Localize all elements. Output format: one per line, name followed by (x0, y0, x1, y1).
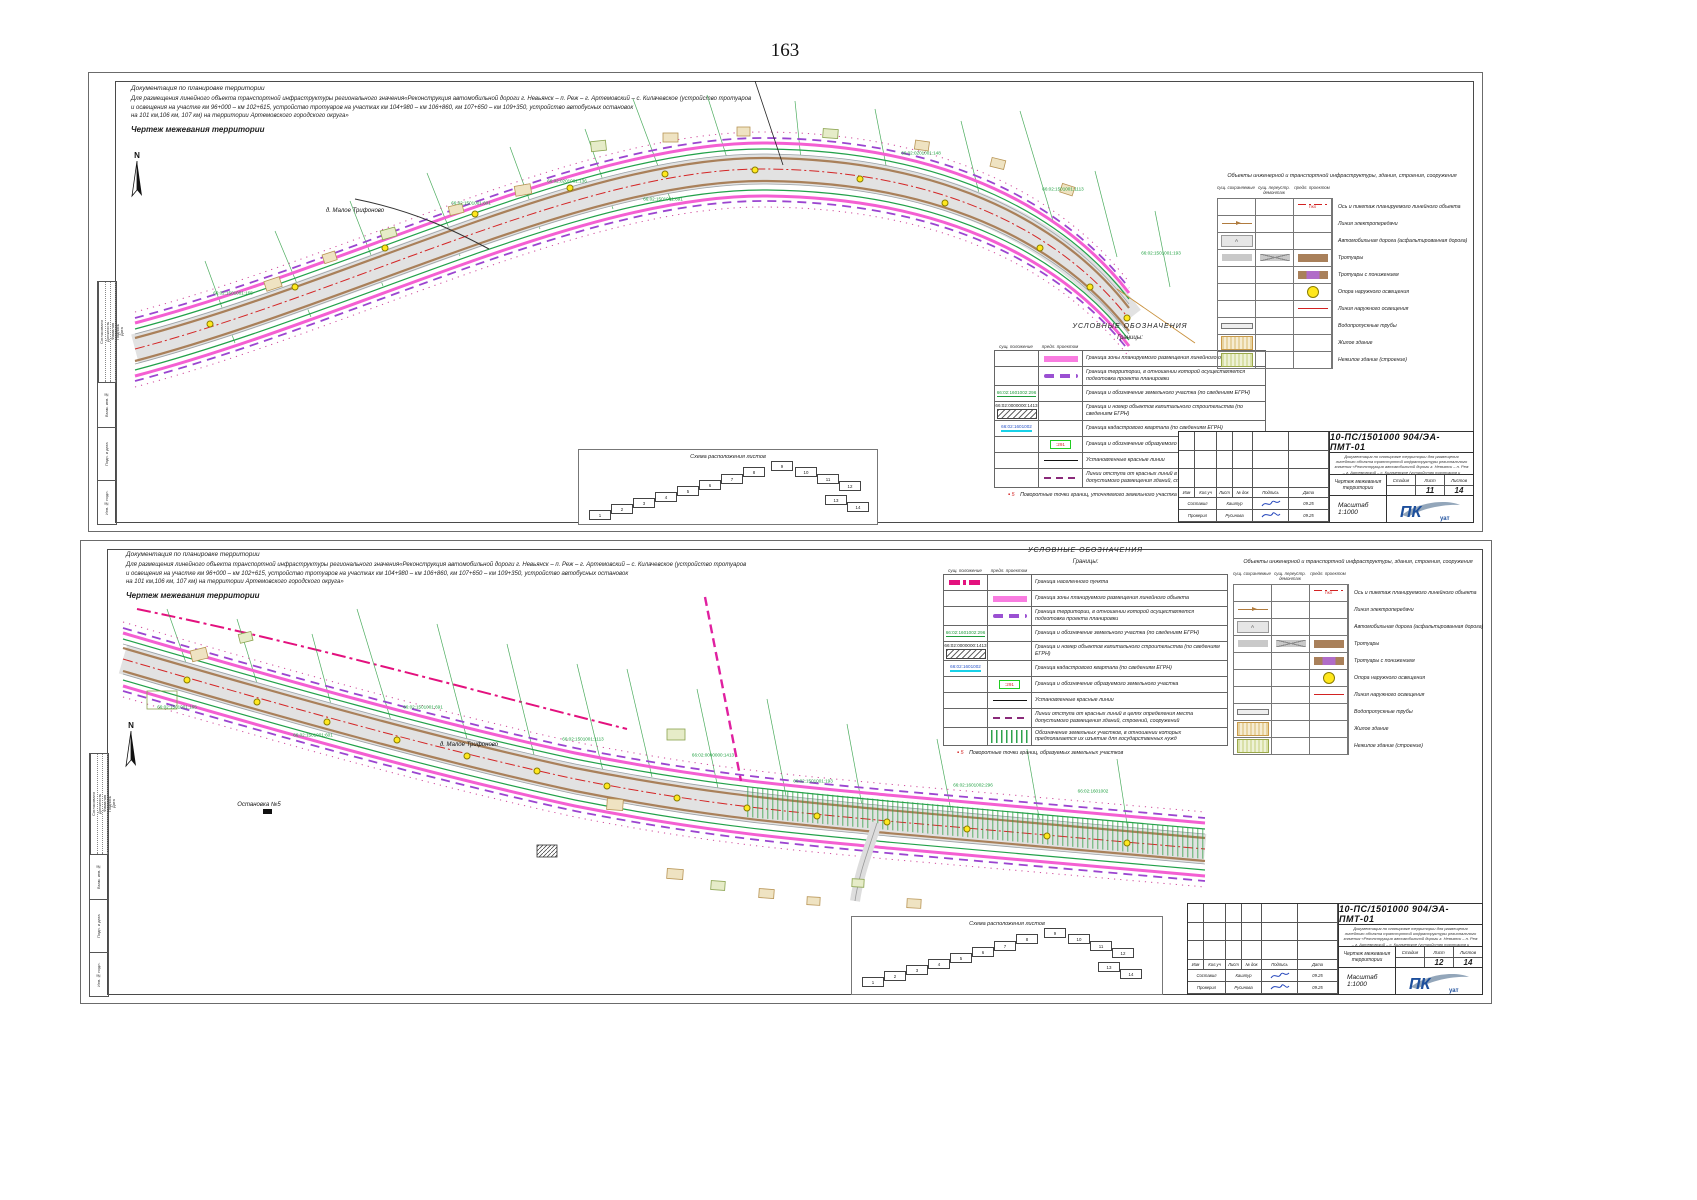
sign-date: 09.25 (1289, 510, 1329, 522)
svg-text:ПК: ПК (1400, 504, 1423, 521)
scheme-sheet-box: 3 (906, 965, 928, 975)
legend-column-headers: сущ. положение предл. проектом (943, 568, 1228, 573)
objects-row: Тротуары (1234, 636, 1348, 653)
lamp-marker (744, 805, 751, 812)
map-label: 66:02:0201001:136 (547, 179, 587, 184)
side-inv-label: Инв.№ подл. (90, 953, 108, 996)
author-name: Каштур (1226, 970, 1262, 982)
legend-label: Линии отступа от красных линий в целях о… (1032, 709, 1227, 727)
lamp-marker (464, 753, 471, 760)
objects-label: Опора наружного освещения (1354, 675, 1425, 681)
objects-label: Автомобильная дорога (асфальтированная д… (1338, 238, 1467, 244)
objects-label: Линия электропередачи (1354, 607, 1414, 613)
lamp-marker (752, 167, 759, 174)
author-name: Каштур (1217, 498, 1253, 510)
stage-sheet-values: 11 14 (1387, 486, 1473, 495)
sign-date: 09.25 (1298, 970, 1338, 982)
legend-label: Граница территории, в отношении которой … (1032, 607, 1227, 625)
page-number: 163 (735, 40, 835, 62)
lamp-marker (604, 783, 611, 790)
lamp-marker (207, 321, 214, 328)
map-label: 66:02:1501001:193 (1141, 251, 1181, 256)
turn-point-icon: ▪ (957, 750, 959, 756)
legend-label: Граница и обозначение земельного участка… (1032, 626, 1227, 641)
lamp-marker (674, 795, 681, 802)
author-role: Составил (1179, 498, 1217, 510)
map-label: д. Малое Трифоново (326, 208, 384, 214)
scheme-sheet-box: 9 (1044, 928, 1066, 938)
author-role: Составил (1188, 970, 1226, 982)
objects-row: ПК0 Ось и пикетаж планируемого линейного… (1234, 585, 1348, 602)
lamp-marker (567, 185, 574, 192)
legend-swatch (1044, 374, 1078, 379)
objects-table: ПК0 Ось и пикетаж планируемого линейного… (1233, 584, 1349, 755)
checker-role: Проверил (1188, 982, 1226, 994)
map-label: 66:02:1501001:1113 (562, 737, 603, 742)
legend-row: Установленные красные линии (944, 693, 1227, 709)
legend-row: Граница населенного пункта (944, 575, 1227, 591)
objects-legend-title: Объекты инженерной и транспортной инфрас… (1217, 173, 1467, 179)
lamp-marker (382, 245, 389, 252)
objects-row: Линия электропередачи (1218, 216, 1332, 233)
lamp-marker (1124, 840, 1131, 847)
scheme-sheet-box: 9 (771, 461, 793, 471)
legend-title: УСЛОВНЫЕ ОБОЗНАЧЕНИЯ (943, 547, 1228, 554)
map-label: 66:02:1501001:601 (293, 733, 333, 738)
checker-name: Русинова (1226, 982, 1262, 994)
stage-sheet-headers: Стадия Лист Листов (1387, 475, 1473, 486)
sheets-total: 14 (1445, 486, 1473, 495)
scheme-sheet-box: 8 (1016, 934, 1038, 944)
map-label: 66:02:1501001:601 (451, 201, 491, 206)
legend-objects: Объекты инженерной и транспортной инфрас… (1233, 559, 1483, 758)
objects-row: Водопропускные трубы (1234, 704, 1348, 721)
objects-row: Линия электропередачи (1234, 602, 1348, 619)
objects-label: Водопропускные трубы (1338, 323, 1397, 329)
scheme-sheet-box: 12 (839, 481, 861, 491)
objects-label: Опора наружного освещения (1338, 289, 1409, 295)
objects-label: Жилое здание (1354, 726, 1389, 732)
legend-swatch (1044, 477, 1078, 479)
side-inv-label: Инв.№ подл. (98, 481, 116, 524)
objects-row: Тротуары с понижением (1234, 653, 1348, 670)
lamp-marker (964, 826, 971, 833)
legend-swatch (993, 717, 1027, 719)
doc-number: 10-ПС/1501000 904/ЭА-ПМТ-01 (1330, 432, 1473, 453)
objects-label: Линия электропередачи (1338, 221, 1398, 227)
sign-date: 09.25 (1289, 498, 1329, 510)
objects-row: Жилое здание (1218, 335, 1332, 352)
legend-label: Граница и номер объектов капитального ст… (1032, 642, 1227, 660)
legend-row: Граница зоны планируемого размещения лин… (944, 591, 1227, 607)
scheme-sheet-box: 10 (1068, 934, 1090, 944)
objects-table: ПК0 Ось и пикетаж планируемого линейного… (1217, 198, 1333, 369)
scheme-sheet-box: 13 (1098, 962, 1120, 972)
sheet-layout-scheme: Схема расположения листов 12345678910111… (578, 449, 878, 525)
legend-row: Граница территории, в отношении которой … (944, 607, 1227, 626)
scheme-sheet-box: 13 (825, 495, 847, 505)
map-label: 66:02:1501001:165 (157, 705, 197, 710)
company-logo: ПК уат (1396, 968, 1482, 994)
side-vzam-label: Взам. инв.№ (90, 855, 108, 899)
stage-sheet-values: 12 14 (1396, 958, 1482, 967)
scanned-document-page: 163 Согласовано Должность Фамилия Подпис… (0, 0, 1697, 1200)
scheme-sheet-box: 8 (743, 467, 765, 477)
company-logo: ПК уат (1387, 496, 1473, 522)
revision-table: Изм Кол.уч Лист № док Подпись Дата Соста… (1188, 904, 1339, 994)
objects-row: Тротуары (1218, 250, 1332, 267)
lamp-marker (472, 211, 479, 218)
objects-column-headers: сущ. сохраняемые сущ. переустр. демонтаж… (1217, 185, 1467, 196)
legend-label: Обозначение земельных участков, в отноше… (1032, 728, 1227, 746)
objects-row: Опора наружного освещения (1218, 284, 1332, 301)
lamp-marker (942, 200, 949, 207)
legend-label: Граница зоны планируемого размещения лин… (1032, 591, 1227, 606)
map-label: 66:02:1501001:165 (213, 291, 253, 296)
legend-swatch (946, 649, 986, 659)
scheme-sheet-box: 1 (589, 510, 611, 520)
lamp-marker (662, 171, 669, 178)
legend-swatch (1044, 356, 1078, 362)
objects-label: Нежилое здание (строение) (1354, 743, 1423, 749)
map-label: 66:02:1501001:1113 (1042, 187, 1083, 192)
scheme-sheet-box: 5 (677, 486, 699, 496)
objects-label: Тротуары с понижением (1354, 658, 1415, 664)
svg-text:ПК: ПК (1409, 976, 1432, 993)
lamp-marker (884, 819, 891, 826)
legend-row: Обозначение земельных участков, в отноше… (944, 728, 1227, 746)
map-label: 66:02:1601002 (1078, 789, 1109, 794)
lamp-marker (1087, 284, 1094, 291)
lamp-marker (184, 677, 191, 684)
sheet-number: 12 (1425, 958, 1454, 967)
map-label: 66:02:0000000:1413 (692, 753, 734, 758)
scheme-sheet-box: 5 (950, 953, 972, 963)
legend-row: :291 Граница и обозначение образуемого з… (944, 677, 1227, 693)
lamp-marker (1044, 833, 1051, 840)
lamp-marker (254, 699, 261, 706)
scheme-sheet-box: 2 (611, 504, 633, 514)
doc-description: Документация по планировке территории дл… (1330, 453, 1473, 475)
scheme-sheet-box: 6 (699, 480, 721, 490)
signature (1262, 982, 1298, 994)
lamp-marker (324, 719, 331, 726)
map-label: 66:02:1501001:691 (403, 705, 443, 710)
objects-row: Водопропускные трубы (1218, 318, 1332, 335)
scheme-sheet-box: 1 (862, 977, 884, 987)
objects-label: Тротуары с понижением (1338, 272, 1399, 278)
objects-label: Нежилое здание (строение) (1338, 357, 1407, 363)
objects-row: Тротуары с понижением (1218, 267, 1332, 284)
signature (1253, 510, 1289, 522)
legend-borders: УСЛОВНЫЕ ОБОЗНАЧЕНИЯ Границы: сущ. полож… (943, 547, 1228, 756)
side-vzam-label: Взам. инв.№ (98, 383, 116, 427)
objects-row: Нежилое здание (строение) (1218, 352, 1332, 368)
svg-text:уат: уат (1449, 988, 1459, 994)
drawing-name: Чертеж межевания территории (1330, 475, 1387, 495)
doc-number: 10-ПС/1501000 904/ЭА-ПМТ-01 (1339, 904, 1482, 925)
legend-swatch (993, 596, 1027, 602)
objects-row: Опора наружного освещения (1234, 670, 1348, 687)
legend-label: Граница населенного пункта (1032, 575, 1227, 590)
scheme-sheet-box: 7 (994, 941, 1016, 951)
scheme-title: Схема расположения листов (579, 454, 877, 460)
side-podp-label: Подп. и дата (90, 900, 108, 952)
legend-swatch (1044, 460, 1078, 462)
legend-swatch (991, 730, 1029, 743)
legend-swatch (993, 700, 1027, 702)
objects-row: ПК0 Ось и пикетаж планируемого линейного… (1218, 199, 1332, 216)
scheme-sheet-box: 12 (1112, 948, 1134, 958)
legend-swatch (997, 409, 1037, 419)
legend-objects: Объекты инженерной и транспортной инфрас… (1217, 173, 1467, 372)
legend-row: 66:02:1601002 Граница кадастрового кварт… (944, 661, 1227, 677)
map-label: 66:02:1601002:296 (953, 783, 993, 788)
scale-label: Масштаб 1:1000 (1330, 496, 1387, 522)
objects-row: Линия наружного освещения (1234, 687, 1348, 704)
sheet-2: Согласовано Должность Фамилия Подпись Да… (80, 540, 1492, 1004)
objects-label: Ось и пикетаж планируемого линейного объ… (1338, 204, 1461, 210)
map-label: 66:02:1501001:691 (643, 197, 683, 202)
lamp-marker (814, 813, 821, 820)
legend-row: Линии отступа от красных линий в целях о… (944, 709, 1227, 728)
map-label: Остановка №5 (237, 802, 280, 808)
drawing-name: Чертеж межевания территории (1339, 947, 1396, 967)
scale-label: Масштаб 1:1000 (1339, 968, 1396, 994)
scheme-sheet-box: 2 (884, 971, 906, 981)
scheme-sheet-box: 4 (655, 492, 677, 502)
legend-table: Граница населенного пункта Граница зоны … (943, 574, 1228, 746)
legend-row: 66:02:1601002:296 Граница и обозначение … (995, 386, 1265, 402)
scheme-sheet-box: 3 (633, 498, 655, 508)
turn-point-icon: ▪ (1008, 492, 1010, 498)
objects-legend-title: Объекты инженерной и транспортной инфрас… (1233, 559, 1483, 565)
legend-swatch (993, 614, 1027, 619)
lamp-marker (1037, 245, 1044, 252)
scheme-sheet-box: 4 (928, 959, 950, 969)
legend-label: Граница и номер объектов капитального ст… (1083, 402, 1265, 420)
side-stamp: Согласовано Должность Фамилия Подпись Да… (97, 281, 117, 525)
scheme-sheet-box: 11 (817, 474, 839, 484)
signature (1253, 498, 1289, 510)
map-label: 66:02:1501001:193 (793, 779, 833, 784)
doc-description: Документация по планировке территории дл… (1339, 925, 1482, 947)
title-block: Изм Кол.уч Лист № док Подпись Дата Соста… (1187, 903, 1483, 995)
legend-group-title: Границы: (943, 559, 1228, 565)
lamp-marker (534, 768, 541, 775)
scheme-sheet-box: 14 (1120, 969, 1142, 979)
legend-note: ▪ 5 Поворотные точки границ, образуемых … (943, 750, 1228, 756)
sheet-1: Согласовано Должность Фамилия Подпись Да… (88, 72, 1483, 532)
objects-label: Линия наружного освещения (1338, 306, 1408, 312)
sheet-number: 11 (1416, 486, 1445, 495)
objects-row: Нежилое здание (строение) (1234, 738, 1348, 754)
legend-label: Граница и обозначение образуемого земель… (1032, 677, 1227, 692)
side-approve-label: Согласовано (90, 754, 97, 854)
checker-role: Проверил (1179, 510, 1217, 522)
objects-column-headers: сущ. сохраняемые сущ. переустр. демонтаж… (1233, 571, 1483, 582)
legend-row: 66:02:0000000:1413 Граница и номер объек… (944, 642, 1227, 661)
objects-label: Тротуары (1354, 641, 1379, 647)
side-approve-label: Согласовано (98, 282, 105, 382)
revision-table: Изм Кол.уч Лист № док Подпись Дата Соста… (1179, 432, 1330, 522)
objects-label: Линия наружного освещения (1354, 692, 1424, 698)
checker-name: Русинова (1217, 510, 1253, 522)
legend-swatch (949, 580, 983, 585)
sheet-layout-scheme: Схема расположения листов 12345678910111… (851, 916, 1163, 995)
legend-label: Установленные красные линии (1032, 693, 1227, 708)
stage-sheet-headers: Стадия Лист Листов (1396, 947, 1482, 958)
lamp-marker (292, 284, 299, 291)
objects-label: Автомобильная дорога (асфальтированная д… (1354, 624, 1483, 630)
svg-text:уат: уат (1440, 516, 1450, 522)
objects-label: Водопропускные трубы (1354, 709, 1413, 715)
objects-row: А Автомобильная дорога (асфальтированная… (1234, 619, 1348, 636)
sign-date: 09.25 (1298, 982, 1338, 994)
legend-row: 66:02:0000000:1413 Граница и номер объек… (995, 402, 1265, 421)
sheets-total: 14 (1454, 958, 1482, 967)
side-stamp: Согласовано Должность Фамилия Подпись Да… (89, 753, 109, 997)
objects-row: Жилое здание (1234, 721, 1348, 738)
objects-row: Линия наружного освещения (1218, 301, 1332, 318)
scheme-sheet-box: 14 (847, 502, 869, 512)
map-label: 66:02:0201001:148 (901, 151, 941, 156)
objects-row: А Автомобильная дорога (асфальтированная… (1218, 233, 1332, 250)
legend-label: Граница и обозначение земельного участка… (1083, 386, 1265, 401)
scheme-sheet-box: 7 (721, 474, 743, 484)
scheme-sheet-box: 11 (1090, 941, 1112, 951)
lamp-marker (1124, 315, 1131, 322)
legend-row: 66:02:1601002:296 Граница и обозначение … (944, 626, 1227, 642)
legend-label: Граница кадастрового квартала (по сведен… (1032, 661, 1227, 676)
objects-label: Ось и пикетаж планируемого линейного объ… (1354, 590, 1477, 596)
lamp-marker (394, 737, 401, 744)
map-label: д. Малое Трифоново (440, 742, 498, 748)
scheme-title: Схема расположения листов (852, 921, 1162, 927)
scheme-sheet-box: 6 (972, 947, 994, 957)
objects-label: Тротуары (1338, 255, 1363, 261)
title-block: Изм Кол.уч Лист № док Подпись Дата Соста… (1178, 431, 1474, 523)
signature (1262, 970, 1298, 982)
lamp-marker (857, 176, 864, 183)
objects-label: Жилое здание (1338, 340, 1373, 346)
scheme-sheet-box: 10 (795, 467, 817, 477)
side-podp-label: Подп. и дата (98, 428, 116, 480)
